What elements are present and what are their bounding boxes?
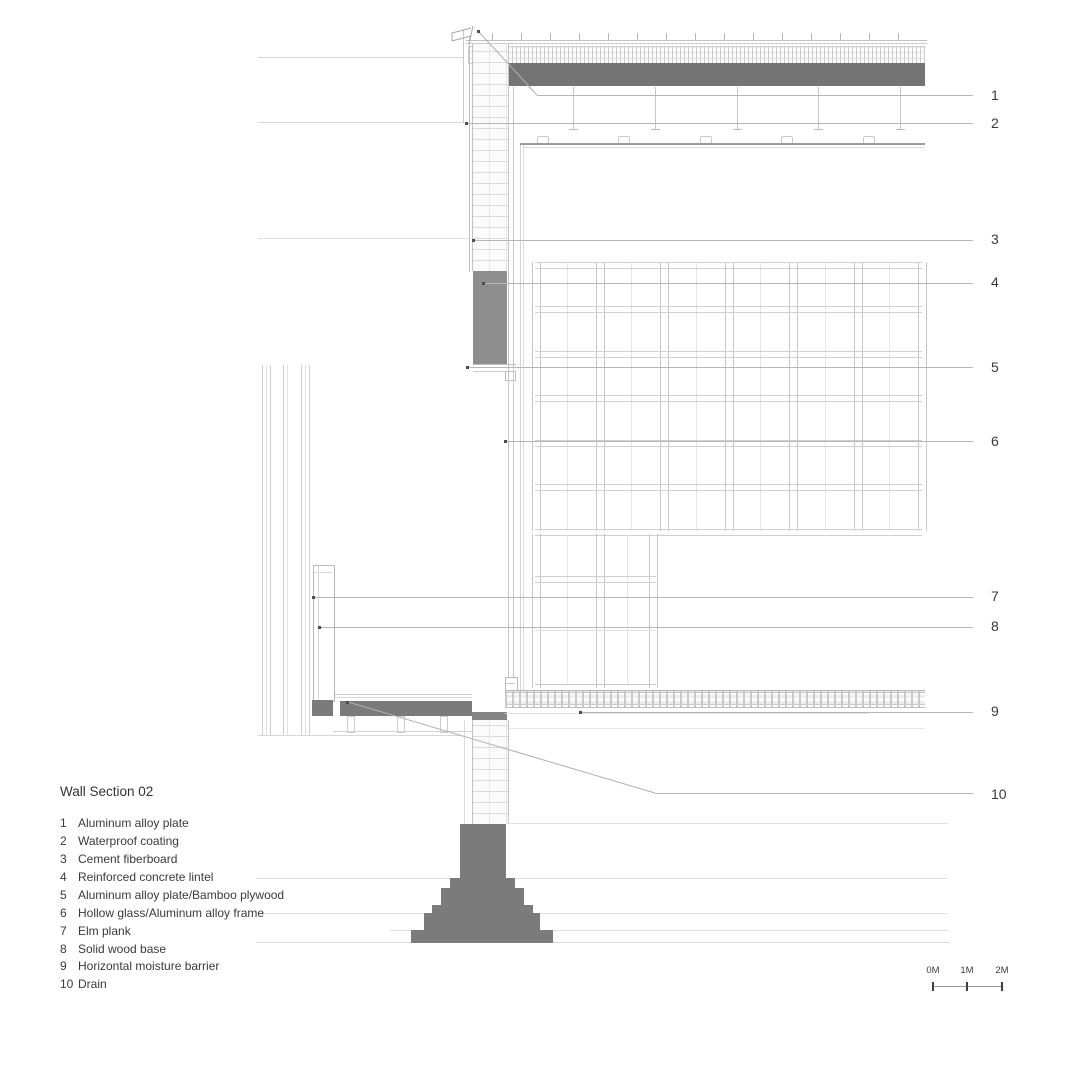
leader-10-diagonal: [348, 702, 655, 793]
scale-label-2m: 2M: [991, 965, 1013, 976]
scale-bar-tick: [932, 982, 934, 991]
callout-number-1: 1: [991, 87, 1023, 103]
legend-item-label: Reinforced concrete lintel: [78, 870, 213, 884]
legend-item: 2 Waterproof coating: [60, 832, 284, 850]
callout-number-4: 4: [991, 274, 1023, 290]
legend-item-label: Hollow glass/Aluminum alloy frame: [78, 906, 264, 920]
leader-dot: [318, 626, 321, 629]
legend-item-label: Elm plank: [78, 924, 131, 938]
legend-item-number: 3: [60, 852, 78, 866]
leader-line-7: [313, 597, 973, 598]
leader-line-2: [466, 123, 973, 124]
legend-item-number: 9: [60, 959, 78, 973]
legend-item: 5 Aluminum alloy plate/Bamboo plywood: [60, 886, 284, 904]
callout-number-8: 8: [991, 618, 1023, 634]
legend-item: 7 Elm plank: [60, 922, 284, 940]
scale-label-0m: 0M: [922, 965, 944, 976]
legend-item: 6 Hollow glass/Aluminum alloy frame: [60, 904, 284, 922]
leader-dot: [504, 440, 507, 443]
callout-number-3: 3: [991, 231, 1023, 247]
callout-number-9: 9: [991, 703, 1023, 719]
legend-item-number: 8: [60, 942, 78, 956]
callout-number-6: 6: [991, 433, 1023, 449]
legend-item-number: 1: [60, 816, 78, 830]
drawing-title: Wall Section 02: [60, 784, 284, 800]
legend-item-label: Aluminum alloy plate: [78, 816, 189, 830]
legend-item-label: Aluminum alloy plate/Bamboo plywood: [78, 888, 284, 902]
leader-line-1: [537, 95, 973, 96]
leader-line-6: [505, 441, 973, 442]
leader-dot: [472, 239, 475, 242]
leader-dot: [312, 596, 315, 599]
scale-bar-tick: [1001, 982, 1003, 991]
eave-gutter-detail: [452, 28, 471, 41]
legend-item-label: Cement fiberboard: [78, 852, 177, 866]
callout-number-10: 10: [991, 786, 1023, 802]
leader-dot: [465, 122, 468, 125]
legend-item: 10 Drain: [60, 975, 284, 993]
legend-item: 3 Cement fiberboard: [60, 850, 284, 868]
leader-1-diagonal: [478, 31, 537, 95]
legend-item-number: 5: [60, 888, 78, 902]
callout-number-7: 7: [991, 588, 1023, 604]
leader-line-5: [467, 367, 973, 368]
leader-line-4: [483, 283, 973, 284]
callout-number-2: 2: [991, 115, 1023, 131]
legend-item: 9 Horizontal moisture barrier: [60, 958, 284, 976]
legend-item-label: Drain: [78, 977, 107, 991]
legend-item-label: Horizontal moisture barrier: [78, 959, 219, 973]
leader-line-9: [580, 712, 973, 713]
leader-dot: [482, 282, 485, 285]
leader-dot: [477, 30, 480, 33]
callout-number-5: 5: [991, 359, 1023, 375]
legend-item: 1 Aluminum alloy plate: [60, 814, 284, 832]
ceiling-edge-chamfer: [528, 86, 537, 95]
legend-item-number: 2: [60, 834, 78, 848]
scale-bar-tick: [966, 982, 968, 991]
leader-dot: [346, 701, 349, 704]
legend: Wall Section 02 1 Aluminum alloy plate 2…: [60, 784, 284, 993]
leader-line-10: [655, 793, 973, 794]
eave-gutter-detail: [452, 36, 471, 41]
legend-item: 8 Solid wood base: [60, 940, 284, 958]
legend-item: 4 Reinforced concrete lintel: [60, 868, 284, 886]
leader-line-8: [319, 627, 973, 628]
legend-item-number: 4: [60, 870, 78, 884]
leader-dot: [579, 711, 582, 714]
scale-label-1m: 1M: [956, 965, 978, 976]
wall-section-drawing: 1 2 3 4 5 6 7 8 9 10 Wall Section 02 1 A…: [0, 0, 1080, 1080]
legend-item-number: 7: [60, 924, 78, 938]
legend-item-label: Waterproof coating: [78, 834, 179, 848]
leader-dot: [466, 366, 469, 369]
legend-item-label: Solid wood base: [78, 942, 166, 956]
legend-item-number: 6: [60, 906, 78, 920]
leader-line-3: [473, 240, 973, 241]
legend-item-number: 10: [60, 977, 78, 991]
